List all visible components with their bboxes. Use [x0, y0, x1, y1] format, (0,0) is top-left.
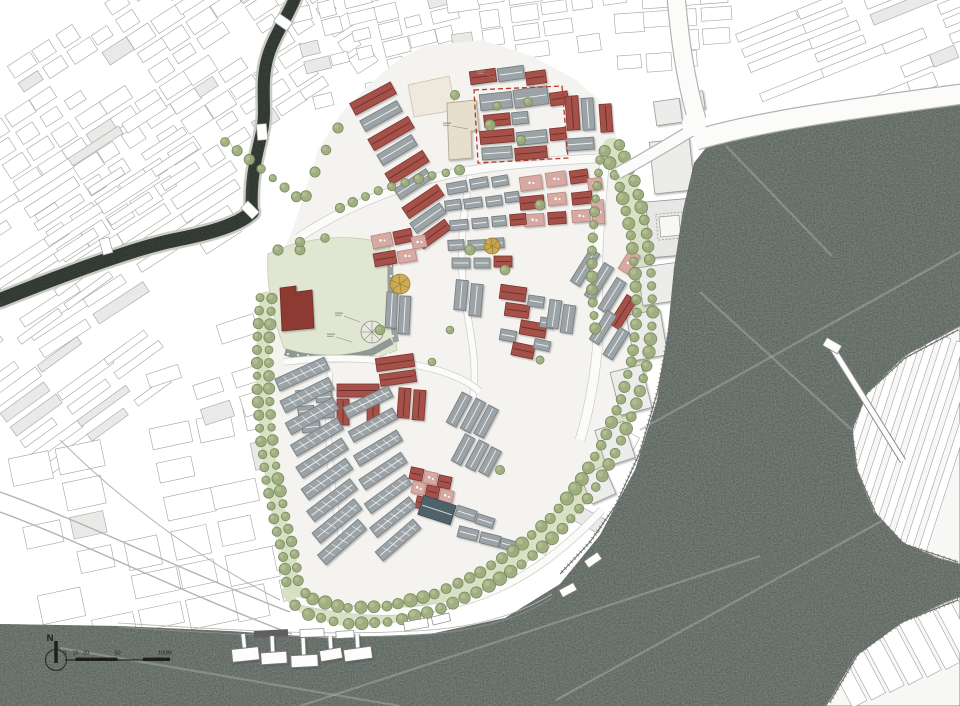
scale-tick-50: 50 — [114, 651, 120, 657]
site-plan-svg: N 0 10 20 50 100M — [0, 0, 960, 706]
scale-tick-10: 10 — [72, 651, 78, 657]
north-label: N — [47, 633, 54, 644]
scale-tick-20: 20 — [83, 651, 89, 657]
masterplan-canvas: N 0 10 20 50 100M — [0, 0, 960, 706]
scale-tick-0: 0 — [63, 651, 66, 657]
scale-tick-100: 100M — [158, 651, 172, 657]
